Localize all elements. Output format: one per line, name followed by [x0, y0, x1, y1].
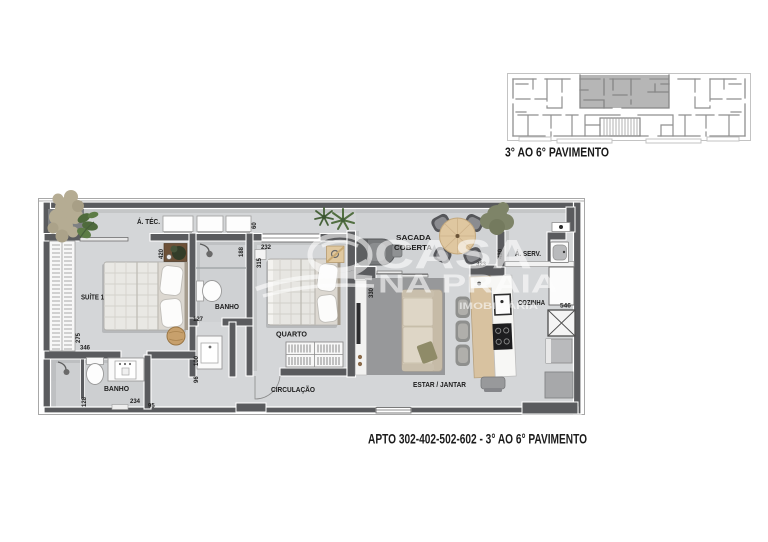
svg-text:315: 315	[257, 257, 263, 268]
svg-text:3° AO 6° PAVIMENTO: 3° AO 6° PAVIMENTO	[505, 145, 609, 160]
svg-text:QUARTO: QUARTO	[276, 330, 307, 339]
svg-text:60: 60	[252, 222, 258, 229]
svg-text:Á. TÉC.: Á. TÉC.	[137, 217, 160, 226]
svg-text:BANHO: BANHO	[215, 302, 239, 311]
svg-text:95: 95	[148, 404, 155, 410]
svg-text:IMOBILIÁRIA: IMOBILIÁRIA	[459, 301, 538, 312]
svg-text:275: 275	[76, 332, 82, 343]
svg-text:SUÍTE 1: SUÍTE 1	[81, 293, 104, 302]
svg-text:546: 546	[560, 303, 571, 310]
svg-text:232: 232	[261, 245, 272, 251]
svg-text:BANHO: BANHO	[104, 384, 129, 393]
svg-text:330: 330	[369, 287, 375, 298]
svg-text:NA PRAIA: NA PRAIA	[378, 269, 558, 299]
svg-text:128: 128	[82, 396, 88, 407]
svg-text:APTO 302-402-502-602 - 3° AO 6: APTO 302-402-502-602 - 3° AO 6° PAVIMENT…	[368, 431, 587, 447]
svg-text:234: 234	[130, 399, 141, 405]
svg-text:96: 96	[194, 376, 200, 383]
svg-text:127: 127	[193, 317, 204, 323]
svg-text:420: 420	[159, 248, 165, 259]
svg-text:ESTAR / JANTAR: ESTAR / JANTAR	[413, 380, 466, 389]
svg-text:100: 100	[194, 355, 200, 366]
svg-text:188: 188	[239, 246, 245, 257]
svg-text:CIRCULAÇÃO: CIRCULAÇÃO	[271, 385, 315, 394]
svg-text:346: 346	[80, 346, 91, 352]
